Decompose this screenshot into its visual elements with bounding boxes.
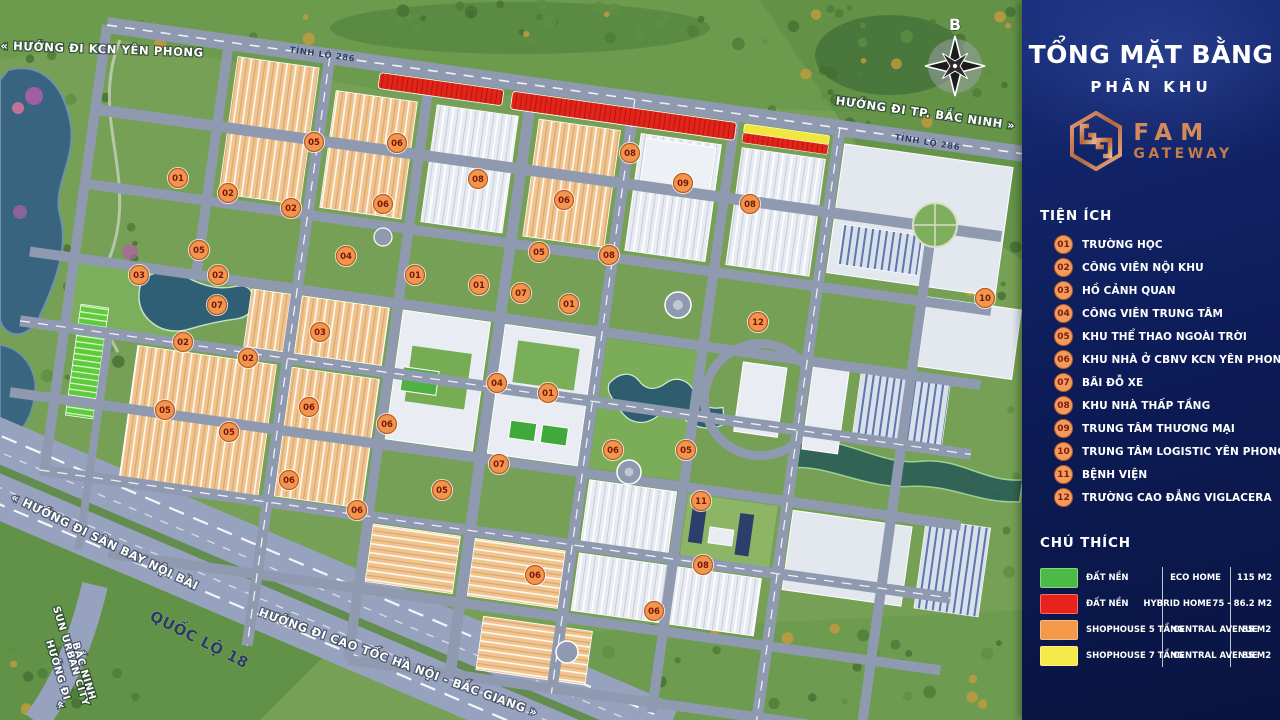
legend-type: SHOPHOUSE 7 TẦNG — [1078, 651, 1164, 661]
amenity-label: KHU NHÀ Ở CBNV KCN YÊN PHONG — [1082, 354, 1280, 366]
amenity-label: KHU THỂ THAO NGOÀI TRỜI — [1082, 331, 1247, 343]
brand-logo: FAM GATEWAY — [1022, 108, 1280, 174]
svg-text:06: 06 — [283, 476, 295, 486]
amenity-number-badge: 01 — [1054, 235, 1073, 254]
svg-text:07: 07 — [211, 301, 223, 311]
legend-type: SHOPHOUSE 5 TẦNG — [1078, 625, 1164, 635]
amenity-item-03: 03HỒ CẢNH QUAN — [1054, 279, 1276, 302]
svg-text:02: 02 — [222, 189, 234, 199]
map-badge-10: 10 — [974, 287, 995, 308]
map-badge-06: 06 — [346, 499, 367, 520]
map-badge-05: 05 — [218, 421, 239, 442]
amenity-label: TRƯỜNG CAO ĐẲNG VIGLACERA — [1082, 492, 1272, 504]
amenity-item-02: 02CÔNG VIÊN NỘI KHU — [1054, 256, 1276, 279]
svg-text:05: 05 — [223, 428, 235, 438]
map-badge-02: 02 — [172, 331, 193, 352]
svg-text:05: 05 — [680, 446, 692, 456]
legend-table: ĐẤT NỀNECO HOME115 M2ĐẤT NỀNHYBRID HOME7… — [1040, 565, 1272, 669]
amenity-number-badge: 04 — [1054, 304, 1073, 323]
map-badge-05: 05 — [154, 399, 175, 420]
legend-row-3: SHOPHOUSE 5 TẦNGCENTRAL AVENUE85 M2 — [1040, 617, 1272, 643]
legend-area: 75 - 86.2 M2 — [1203, 599, 1272, 609]
svg-text:02: 02 — [242, 354, 254, 364]
map-badge-08: 08 — [619, 142, 640, 163]
amenity-item-08: 08KHU NHÀ THẤP TẦNG — [1054, 394, 1276, 417]
svg-text:01: 01 — [473, 281, 485, 291]
panel-subtitle: PHÂN KHU — [1022, 78, 1280, 96]
legend-type: ĐẤT NỀN — [1078, 599, 1134, 609]
map-badge-05: 05 — [303, 131, 324, 152]
amenity-number-badge: 08 — [1054, 396, 1073, 415]
svg-text:06: 06 — [381, 420, 393, 430]
svg-text:08: 08 — [624, 149, 636, 159]
legend-color-swatch — [1040, 568, 1078, 588]
map-badge-02: 02 — [237, 347, 258, 368]
legend-color-swatch — [1040, 620, 1078, 640]
amenity-item-04: 04CÔNG VIÊN TRUNG TÂM — [1054, 302, 1276, 325]
svg-text:11: 11 — [695, 497, 707, 507]
map-badge-06: 06 — [376, 413, 397, 434]
amenity-item-10: 10TRUNG TÂM LOGISTIC YÊN PHONG — [1054, 440, 1276, 463]
brand-name: FAM — [1133, 120, 1232, 146]
legend-row-2: ĐẤT NỀNHYBRID HOME75 - 86.2 M2 — [1040, 591, 1272, 617]
map-badge-08: 08 — [598, 244, 619, 265]
svg-text:05: 05 — [308, 138, 320, 148]
svg-text:10: 10 — [979, 294, 991, 304]
map-badge-02: 02 — [280, 197, 301, 218]
map-badge-08: 08 — [467, 168, 488, 189]
svg-text:06: 06 — [377, 200, 389, 210]
amenity-number-badge: 10 — [1054, 442, 1073, 461]
svg-text:01: 01 — [409, 271, 421, 281]
legend-row-4: SHOPHOUSE 7 TẦNGCENTRAL AVENUE85 M2 — [1040, 643, 1272, 669]
map-badge-07: 07 — [206, 294, 227, 315]
panel-title: TỔNG MẶT BẰNG — [1022, 40, 1280, 69]
map-badge-02: 02 — [217, 182, 238, 203]
map-badge-07: 07 — [510, 282, 531, 303]
legend-area: 115 M2 — [1228, 573, 1272, 583]
svg-text:07: 07 — [493, 460, 505, 470]
svg-text:01: 01 — [563, 300, 575, 310]
amenity-label: BỆNH VIỆN — [1082, 469, 1147, 481]
svg-text:05: 05 — [159, 406, 171, 416]
map-badge-05: 05 — [431, 479, 452, 500]
map-badge-01: 01 — [537, 382, 558, 403]
amenity-label: HỒ CẢNH QUAN — [1082, 285, 1176, 297]
amenity-label: BÃI ĐỖ XE — [1082, 377, 1143, 389]
svg-text:04: 04 — [491, 379, 503, 389]
svg-text:01: 01 — [542, 389, 554, 399]
map-badge-01: 01 — [468, 274, 489, 295]
map-badge-04: 04 — [486, 372, 507, 393]
svg-text:08: 08 — [472, 175, 484, 185]
amenity-label: CÔNG VIÊN NỘI KHU — [1082, 262, 1204, 274]
map-badge-02: 02 — [207, 264, 228, 285]
amenity-label: KHU NHÀ THẤP TẦNG — [1082, 400, 1210, 412]
amenity-item-12: 12TRƯỜNG CAO ĐẲNG VIGLACERA — [1054, 486, 1276, 509]
amenity-item-09: 09TRUNG TÂM THƯƠNG MẠI — [1054, 417, 1276, 440]
legend-type: ĐẤT NỀN — [1078, 573, 1161, 583]
legend-product: ECO HOME — [1161, 573, 1228, 583]
amenity-number-badge: 02 — [1054, 258, 1073, 277]
map-badge-06: 06 — [602, 439, 623, 460]
amenity-item-06: 06KHU NHÀ Ở CBNV KCN YÊN PHONG — [1054, 348, 1276, 371]
svg-text:09: 09 — [677, 179, 689, 189]
map-badge-05: 05 — [188, 239, 209, 260]
svg-text:05: 05 — [193, 246, 205, 256]
svg-text:06: 06 — [391, 139, 403, 149]
legend-product: CENTRAL AVENUE — [1164, 651, 1233, 661]
map-badge-06: 06 — [643, 600, 664, 621]
map-badge-05: 05 — [675, 439, 696, 460]
info-panel: TỔNG MẶT BẰNG PHÂN KHU FAM GATEWAY TIỆN … — [1022, 0, 1280, 720]
amenity-number-badge: 09 — [1054, 419, 1073, 438]
legend-row-1: ĐẤT NỀNECO HOME115 M2 — [1040, 565, 1272, 591]
map-badge-09: 09 — [672, 172, 693, 193]
compass-north-label: B — [949, 15, 961, 34]
amenity-label: TRUNG TÂM THƯƠNG MẠI — [1082, 423, 1235, 435]
map-badge-01: 01 — [558, 293, 579, 314]
legend-area: 85 M2 — [1233, 625, 1271, 635]
map-badge-03: 03 — [309, 321, 330, 342]
svg-text:12: 12 — [752, 318, 764, 328]
legend-color-swatch — [1040, 594, 1078, 614]
svg-text:06: 06 — [558, 196, 570, 206]
map-badge-05: 05 — [528, 241, 549, 262]
svg-text:06: 06 — [529, 571, 541, 581]
map-badge-06: 06 — [553, 189, 574, 210]
map-badge-06: 06 — [524, 564, 545, 585]
brand-name-2: GATEWAY — [1133, 146, 1232, 162]
svg-text:03: 03 — [314, 328, 326, 338]
map-badge-01: 01 — [167, 167, 188, 188]
map-badge-06: 06 — [372, 193, 393, 214]
amenity-number-badge: 11 — [1054, 465, 1073, 484]
amenity-number-badge: 12 — [1054, 488, 1073, 507]
map-badge-08: 08 — [692, 554, 713, 575]
site-plan-map: « HƯỚNG ĐI KCN YÊN PHONGTỈNH LỘ 286HƯỚNG… — [0, 0, 1022, 720]
svg-text:02: 02 — [285, 204, 297, 214]
map-badge-07: 07 — [488, 453, 509, 474]
svg-text:05: 05 — [533, 248, 545, 258]
amenities-list: 01TRƯỜNG HỌC02CÔNG VIÊN NỘI KHU03HỒ CẢNH… — [1022, 233, 1280, 509]
map-badge-06: 06 — [298, 396, 319, 417]
svg-text:08: 08 — [744, 200, 756, 210]
master-plan-screenshot: « HƯỚNG ĐI KCN YÊN PHONGTỈNH LỘ 286HƯỚNG… — [0, 0, 1280, 720]
legend-color-swatch — [1040, 646, 1078, 666]
svg-text:03: 03 — [133, 271, 145, 281]
svg-text:06: 06 — [648, 607, 660, 617]
svg-text:01: 01 — [172, 174, 184, 184]
svg-text:08: 08 — [603, 251, 615, 261]
amenities-heading: TIỆN ÍCH — [1022, 208, 1280, 224]
svg-text:02: 02 — [212, 271, 224, 281]
amenity-label: CÔNG VIÊN TRUNG TÂM — [1082, 308, 1223, 320]
amenity-label: TRƯỜNG HỌC — [1082, 239, 1163, 251]
svg-text:06: 06 — [607, 446, 619, 456]
svg-text:06: 06 — [351, 506, 363, 516]
amenity-number-badge: 06 — [1054, 350, 1073, 369]
svg-text:05: 05 — [436, 486, 448, 496]
svg-text:04: 04 — [340, 252, 352, 262]
svg-text:07: 07 — [515, 289, 527, 299]
amenity-item-11: 11BỆNH VIỆN — [1054, 463, 1276, 486]
map-badge-06: 06 — [278, 469, 299, 490]
svg-text:02: 02 — [177, 338, 189, 348]
map-badge-04: 04 — [335, 245, 356, 266]
legend-product: HYBRID HOME — [1134, 599, 1203, 609]
amenity-item-01: 01TRƯỜNG HỌC — [1054, 233, 1276, 256]
legend-area: 85 M2 — [1233, 651, 1271, 661]
map-badge-01: 01 — [404, 264, 425, 285]
amenity-number-badge: 03 — [1054, 281, 1073, 300]
map-badge-06: 06 — [386, 132, 407, 153]
fam-gateway-logo-icon — [1069, 111, 1123, 171]
map-badge-08: 08 — [739, 193, 760, 214]
amenity-item-07: 07BÃI ĐỖ XE — [1054, 371, 1276, 394]
amenity-item-05: 05KHU THỂ THAO NGOÀI TRỜI — [1054, 325, 1276, 348]
amenity-number-badge: 05 — [1054, 327, 1073, 346]
svg-text:08: 08 — [697, 561, 709, 571]
svg-text:06: 06 — [303, 403, 315, 413]
legend-heading: CHÚ THÍCH — [1022, 535, 1280, 551]
site-plan-canvas: « HƯỚNG ĐI KCN YÊN PHONGTỈNH LỘ 286HƯỚNG… — [0, 0, 1022, 720]
map-badge-11: 11 — [690, 490, 711, 511]
amenity-number-badge: 07 — [1054, 373, 1073, 392]
map-badge-12: 12 — [747, 311, 768, 332]
amenity-label: TRUNG TÂM LOGISTIC YÊN PHONG — [1082, 446, 1280, 458]
map-badge-03: 03 — [128, 264, 149, 285]
legend-product: CENTRAL AVENUE — [1164, 625, 1233, 635]
